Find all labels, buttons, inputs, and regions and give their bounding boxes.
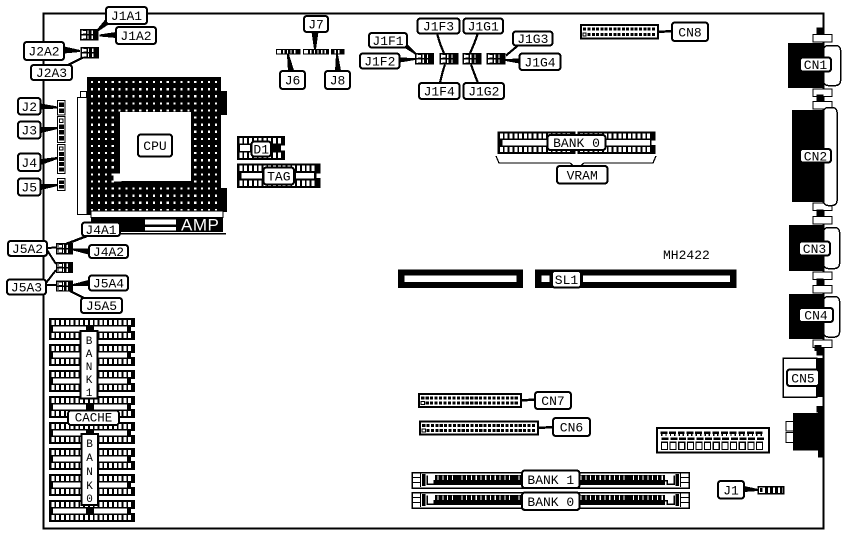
svg-text:SL1: SL1: [555, 273, 579, 288]
svg-text:J4A2: J4A2: [93, 245, 124, 260]
svg-text:J6: J6: [285, 74, 301, 89]
svg-text:BANK 1: BANK 1: [527, 473, 574, 488]
svg-text:J1G4: J1G4: [524, 55, 555, 70]
svg-text:J2A3: J2A3: [36, 66, 67, 81]
svg-text:AMP: AMP: [181, 216, 219, 235]
svg-text:CN6: CN6: [560, 421, 583, 436]
svg-text:TAG: TAG: [267, 170, 290, 185]
svg-text:BANK 0: BANK 0: [553, 136, 600, 151]
svg-text:MH2422: MH2422: [663, 248, 710, 263]
svg-text:1: 1: [86, 388, 93, 400]
svg-text:CN7: CN7: [541, 394, 564, 409]
svg-text:J2A2: J2A2: [28, 45, 59, 60]
svg-text:D1: D1: [253, 143, 269, 158]
svg-text:J5A3: J5A3: [11, 281, 42, 296]
svg-text:0: 0: [86, 494, 93, 506]
svg-text:CN2: CN2: [804, 149, 827, 164]
svg-text:B: B: [86, 336, 93, 348]
svg-text:J8: J8: [330, 74, 346, 89]
svg-text:J1G1: J1G1: [468, 20, 499, 35]
svg-text:J2: J2: [21, 100, 37, 115]
svg-text:J4A1: J4A1: [85, 223, 116, 238]
svg-text:K: K: [86, 481, 93, 493]
svg-text:CN5: CN5: [791, 371, 814, 386]
svg-text:B: B: [86, 439, 93, 451]
svg-text:N: N: [86, 467, 93, 479]
svg-text:J5A5: J5A5: [86, 299, 117, 314]
svg-text:J1G3: J1G3: [517, 32, 548, 47]
svg-text:CPU: CPU: [143, 139, 166, 154]
svg-text:N: N: [86, 362, 93, 374]
svg-text:J1F4: J1F4: [424, 85, 455, 100]
svg-text:J1G2: J1G2: [468, 85, 499, 100]
svg-text:A: A: [86, 453, 93, 465]
svg-text:CACHE: CACHE: [75, 412, 113, 426]
svg-text:J1A1: J1A1: [111, 9, 142, 24]
svg-text:VRAM: VRAM: [567, 168, 598, 183]
svg-text:J4: J4: [21, 156, 37, 171]
svg-text:J5A2: J5A2: [12, 242, 43, 257]
svg-text:J5: J5: [21, 181, 37, 196]
svg-text:CN4: CN4: [804, 309, 828, 324]
svg-text:J3: J3: [21, 124, 37, 139]
svg-text:CN3: CN3: [803, 242, 826, 257]
svg-text:J7: J7: [308, 18, 324, 33]
svg-text:J1: J1: [723, 483, 739, 498]
svg-text:J1F1: J1F1: [372, 34, 403, 49]
svg-text:J1F3: J1F3: [423, 20, 454, 35]
svg-text:CN8: CN8: [678, 25, 701, 40]
svg-text:CN1: CN1: [804, 58, 828, 73]
svg-text:A: A: [86, 349, 93, 361]
svg-text:K: K: [86, 375, 93, 387]
svg-text:BANK 0: BANK 0: [527, 495, 574, 510]
svg-text:J5A4: J5A4: [93, 277, 124, 292]
svg-text:J1F2: J1F2: [364, 55, 395, 70]
svg-text:J1A2: J1A2: [120, 29, 151, 44]
